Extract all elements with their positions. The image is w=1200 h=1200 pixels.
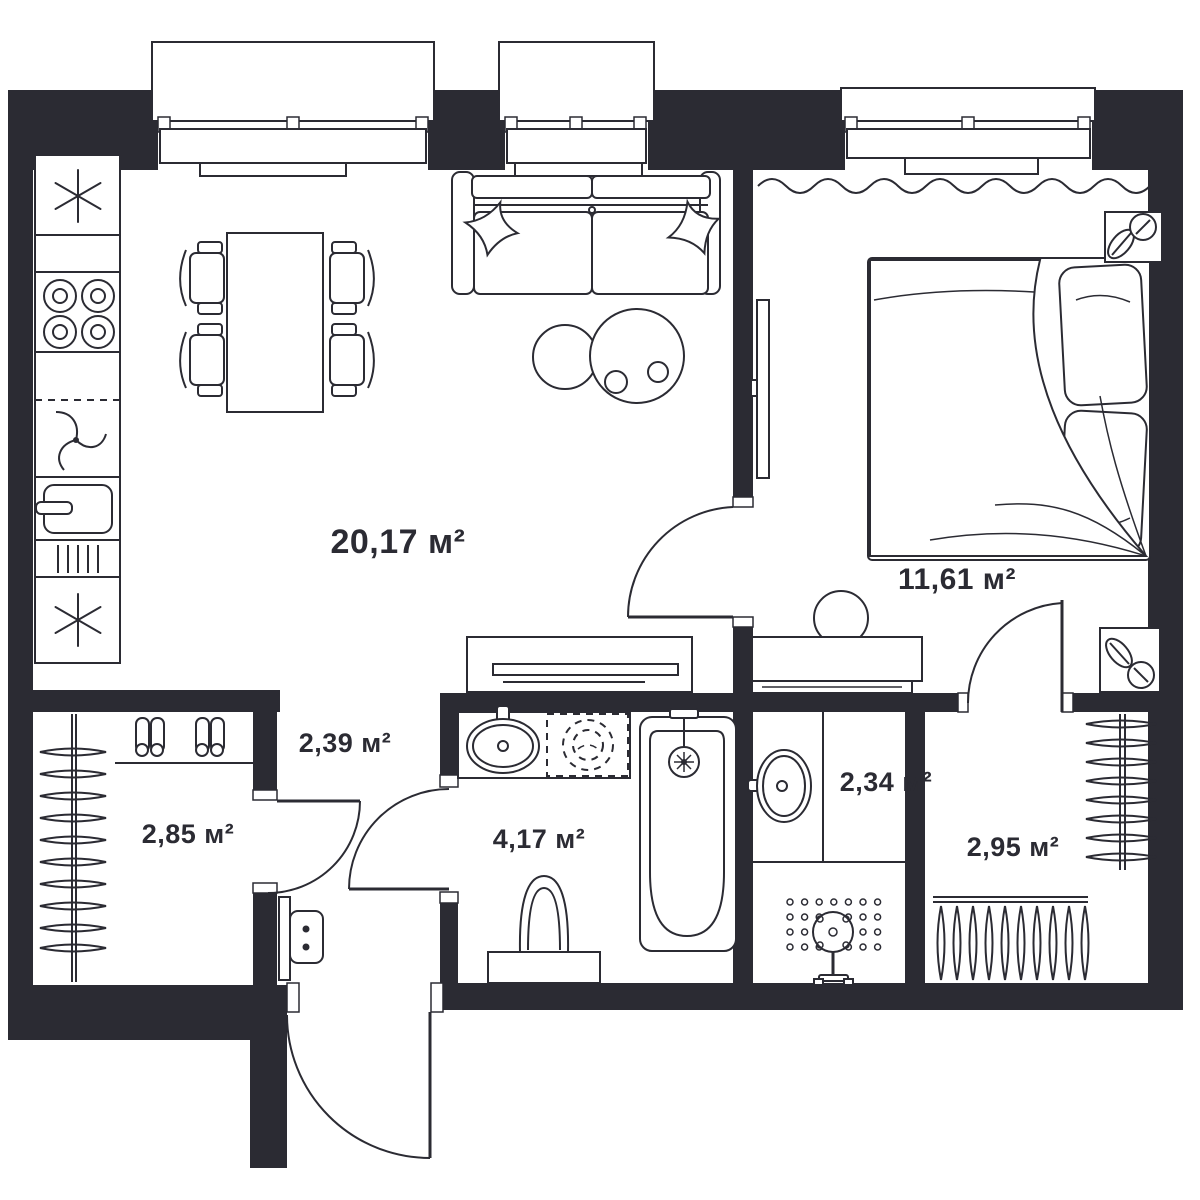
- nightstand: [1100, 628, 1160, 692]
- door-entrance: [287, 1012, 430, 1158]
- door-bathroom: [349, 789, 449, 889]
- toilet-icon: [488, 876, 600, 983]
- sofa-armrest: [452, 172, 474, 294]
- shower-sink-icon: [748, 750, 811, 822]
- floor-plan: 20,17 м² 11,61 м² 2,39 м² 2,85 м² 4,17 м…: [0, 0, 1200, 1200]
- shoes-icon: [136, 718, 224, 756]
- door-arc: [268, 801, 360, 893]
- room-label-bathroom: 4,17 м²: [493, 824, 586, 854]
- kitchen-sink-icon: [36, 485, 112, 533]
- nightstand: [1103, 212, 1162, 263]
- chair: [180, 324, 224, 396]
- chair: [180, 242, 224, 314]
- room-label-shower: 2,34 м²: [840, 767, 933, 797]
- shower-head-icon: [813, 912, 853, 985]
- sofa: [452, 172, 726, 294]
- bed: [868, 258, 1150, 560]
- hanger-icon: [938, 906, 1089, 980]
- door-arc: [968, 603, 1062, 703]
- console-table: [467, 637, 692, 692]
- chair: [330, 242, 374, 314]
- dining-table: [227, 233, 323, 412]
- mirror-dresser: [752, 591, 922, 693]
- room-label-living: 20,17 м²: [330, 523, 465, 561]
- tv-icon: [751, 300, 769, 478]
- door-arc: [287, 1015, 430, 1158]
- door-arc: [349, 789, 449, 889]
- door-living-bedroom: [628, 507, 733, 617]
- floor-plan-svg: 20,17 м² 11,61 м² 2,39 м² 2,85 м² 4,17 м…: [0, 0, 1200, 1200]
- chair: [330, 324, 374, 396]
- dining-table-group: [180, 233, 374, 412]
- curtain-pelmet: [905, 158, 1038, 174]
- room-label-closet: 2,95 м²: [967, 832, 1060, 862]
- window-living-2: [499, 42, 654, 176]
- door-wardrobe: [268, 801, 360, 893]
- room-label-wardrobe: 2,85 м²: [142, 819, 235, 849]
- kitchen-counter: [35, 155, 120, 663]
- room-label-bedroom: 11,61 м²: [898, 563, 1016, 596]
- window-living: [152, 42, 434, 176]
- bathtub-icon: [640, 709, 736, 951]
- intercom-panel: [279, 897, 323, 980]
- window-ledge: [515, 163, 642, 176]
- coffee-table: [533, 309, 684, 403]
- shower-room-group: [748, 712, 905, 985]
- door-arc: [628, 507, 733, 617]
- window-ledge: [200, 163, 346, 176]
- room-label-hallway: 2,39 м²: [299, 728, 392, 758]
